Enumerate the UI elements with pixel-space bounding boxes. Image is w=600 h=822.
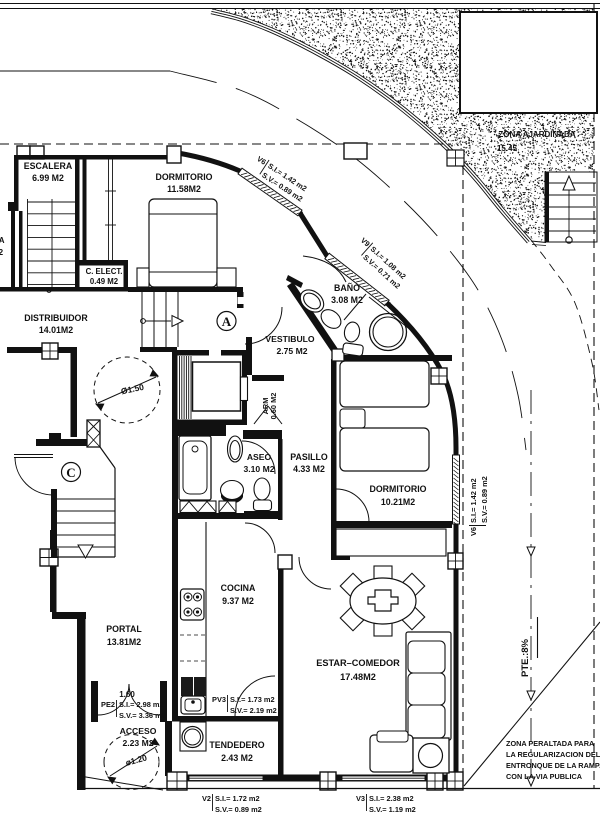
svg-text:2.43 M2: 2.43 M2	[221, 753, 253, 763]
svg-text:ESTAR–COMEDOR: ESTAR–COMEDOR	[316, 658, 400, 668]
svg-text:TENDEDERO: TENDEDERO	[209, 740, 264, 750]
svg-text:DORMITORIO: DORMITORIO	[155, 172, 212, 182]
svg-text:S.I.= 2.98 m2: S.I.= 2.98 m2	[119, 700, 164, 709]
svg-text:DORMITORIO: DORMITORIO	[369, 484, 426, 494]
svg-text:S.V.= 0.89 m2: S.V.= 0.89 m2	[480, 476, 489, 523]
svg-text:ACCESO: ACCESO	[120, 726, 157, 736]
svg-text:0.60 M2: 0.60 M2	[269, 393, 278, 420]
svg-text:V6: V6	[469, 527, 478, 536]
svg-text:15.45: 15.45	[497, 144, 518, 153]
svg-text:2.75 M2: 2.75 M2	[276, 346, 307, 356]
svg-text:BAÑO: BAÑO	[334, 283, 360, 293]
svg-text:ZONA PERALTADA PARA: ZONA PERALTADA PARA	[506, 739, 595, 748]
svg-text:PV3: PV3	[212, 695, 226, 704]
svg-text:S.V.= 0.89 m2: S.V.= 0.89 m2	[215, 805, 262, 814]
svg-text:4.33 M2: 4.33 M2	[293, 464, 325, 474]
svg-text:S.I.= 1.42 m2: S.I.= 1.42 m2	[469, 478, 478, 523]
svg-text:2.23 M2: 2.23 M2	[122, 738, 153, 748]
svg-text:13.81M2: 13.81M2	[107, 637, 141, 647]
svg-text:VESTIBULO: VESTIBULO	[265, 334, 314, 344]
svg-text:PORTAL: PORTAL	[106, 624, 142, 634]
svg-text:11.58M2: 11.58M2	[167, 184, 201, 194]
svg-text:S.I.= 1.72 m2: S.I.= 1.72 m2	[215, 794, 260, 803]
svg-text:PTE.:8%: PTE.:8%	[520, 638, 531, 677]
svg-text:C. ELECT.: C. ELECT.	[86, 267, 123, 276]
svg-text:A: A	[222, 314, 232, 329]
svg-text:V3: V3	[356, 794, 365, 803]
svg-text:3.10 M2: 3.10 M2	[243, 464, 274, 474]
svg-text:VA: VA	[0, 236, 5, 245]
svg-text:COCINA: COCINA	[221, 583, 256, 593]
svg-text:3.08 M2: 3.08 M2	[331, 295, 363, 305]
svg-text:C: C	[66, 465, 75, 480]
svg-text:1.60: 1.60	[119, 690, 135, 699]
svg-text:ESCALERA: ESCALERA	[24, 161, 73, 171]
svg-text:Ø1.50: Ø1.50	[120, 382, 145, 397]
svg-text:14.01M2: 14.01M2	[39, 325, 73, 335]
svg-text:ENTRONQUE DE LA RAMPA: ENTRONQUE DE LA RAMPA	[506, 761, 600, 770]
svg-text:6.99 M2: 6.99 M2	[32, 173, 64, 183]
svg-text:17.48M2: 17.48M2	[340, 672, 376, 682]
svg-text:CON LA VIA PUBLICA: CON LA VIA PUBLICA	[506, 772, 583, 781]
svg-text:10.21M2: 10.21M2	[381, 497, 415, 507]
svg-text:M2: M2	[0, 248, 4, 257]
svg-text:9.37 M2: 9.37 M2	[222, 596, 254, 606]
svg-text:PE2: PE2	[101, 700, 115, 709]
svg-text:PASILLO: PASILLO	[290, 452, 328, 462]
svg-text:ASEO: ASEO	[247, 452, 272, 462]
svg-text:S.I.= 2.38 m2: S.I.= 2.38 m2	[369, 794, 414, 803]
svg-text:S.V.= 3.36 m2: S.V.= 3.36 m2	[119, 711, 166, 720]
svg-text:S.V.= 2.19 m2: S.V.= 2.19 m2	[230, 706, 277, 715]
svg-text:S.V.= 1.19 m2: S.V.= 1.19 m2	[369, 805, 416, 814]
svg-text:LA REGULARIZACION DEL: LA REGULARIZACION DEL	[506, 750, 600, 759]
svg-text:V2: V2	[202, 794, 211, 803]
svg-text:0.49 M2: 0.49 M2	[90, 277, 119, 286]
svg-text:ZONA AJARDINADA: ZONA AJARDINADA	[498, 130, 575, 139]
svg-text:S.I.= 1.73 m2: S.I.= 1.73 m2	[230, 695, 275, 704]
svg-text:DISTRIBUIDOR: DISTRIBUIDOR	[24, 313, 88, 323]
svg-text:ø1.20: ø1.20	[124, 752, 148, 767]
